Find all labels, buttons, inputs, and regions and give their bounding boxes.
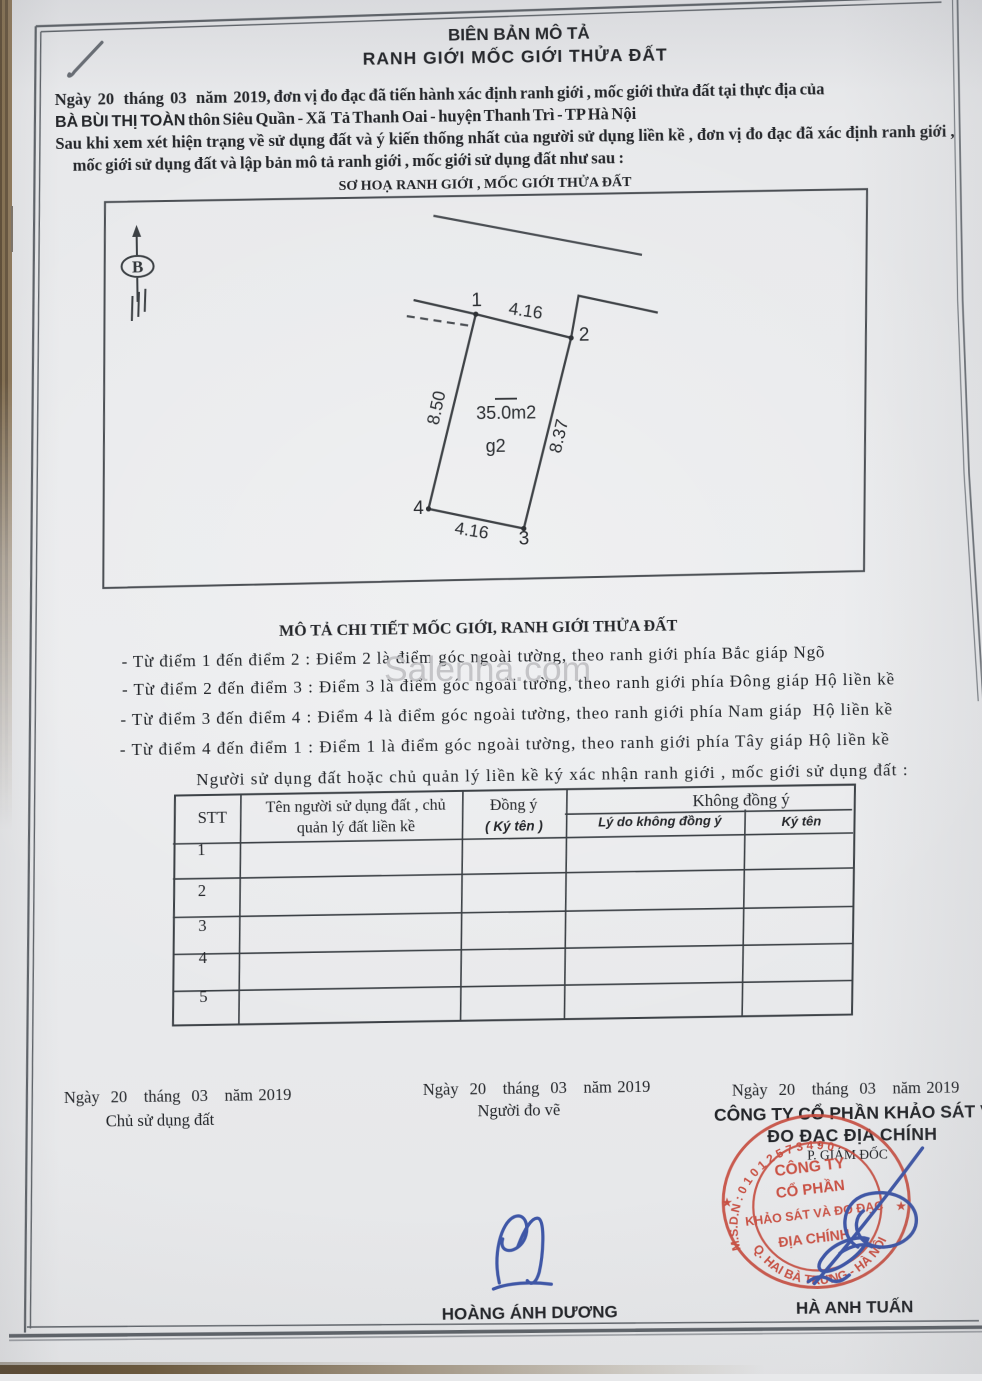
svg-text:4: 4	[413, 498, 424, 519]
svg-text:35.0m2: 35.0m2	[476, 402, 536, 423]
svg-text:B: B	[132, 257, 144, 276]
svg-text:★: ★	[721, 1195, 733, 1210]
svg-text:2: 2	[579, 325, 590, 346]
svg-text:g2: g2	[485, 436, 505, 456]
svg-text:1: 1	[471, 290, 482, 311]
svg-text:4.16: 4.16	[507, 298, 544, 323]
svg-text:8.50: 8.50	[423, 389, 450, 427]
svg-text:4.16: 4.16	[453, 518, 490, 543]
svg-text:3: 3	[519, 528, 530, 549]
